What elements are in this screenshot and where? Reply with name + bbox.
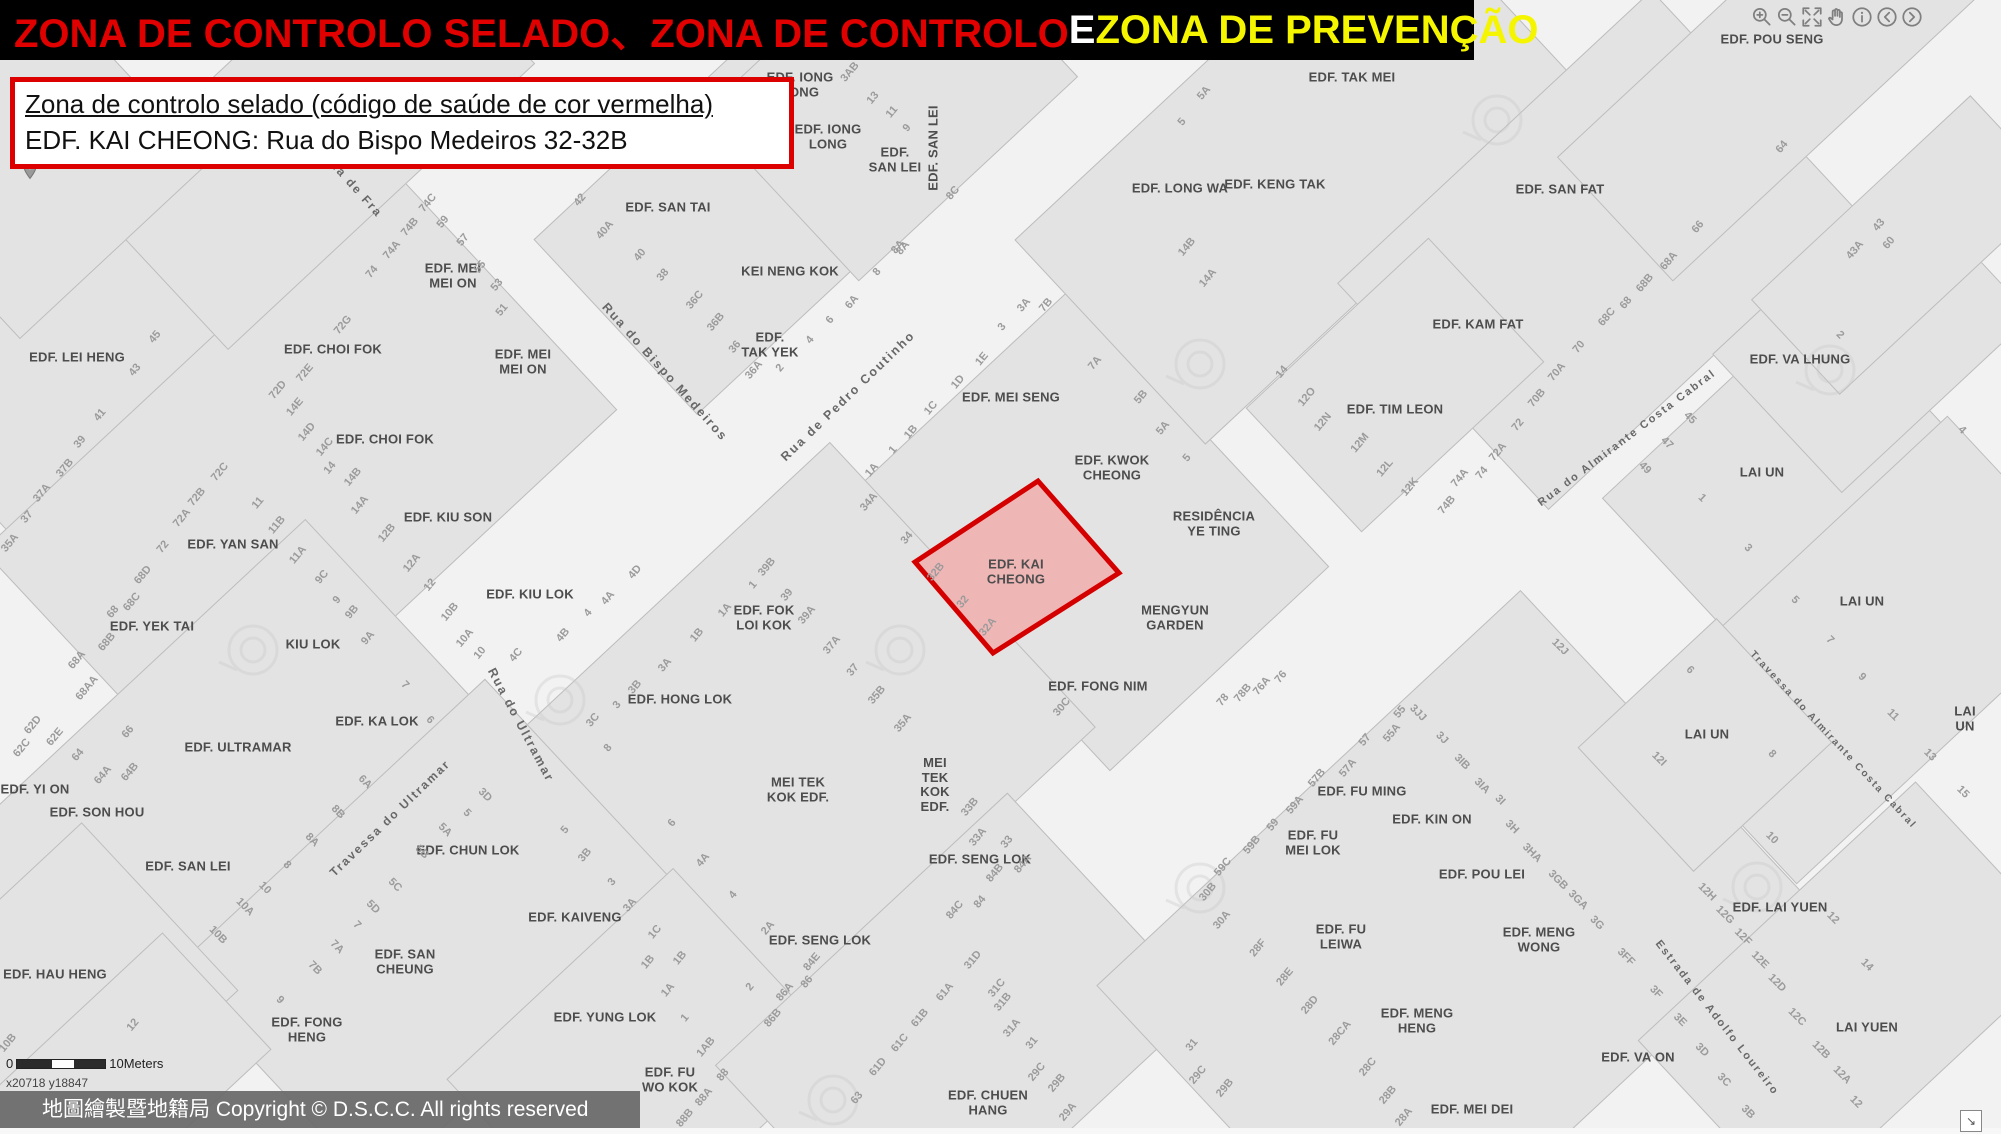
lot-number: 15 xyxy=(1954,783,1971,800)
lot-number: 72A xyxy=(1487,440,1509,463)
building-label: LAI UN xyxy=(1840,595,1885,610)
lot-number: 10B xyxy=(207,924,230,947)
lot-number: 57 xyxy=(454,231,471,248)
lot-number: 37A xyxy=(31,481,53,504)
lot-number: 3B xyxy=(1739,1103,1757,1121)
lot-number: 32A xyxy=(977,615,999,638)
lot-number: 5A xyxy=(436,821,454,839)
building-label: KIU LOK xyxy=(286,638,341,653)
lot-number: 3GB xyxy=(1546,868,1570,892)
building-label: EDF. POU SENG xyxy=(1720,33,1823,48)
lot-number: 3A xyxy=(656,656,674,674)
lot-number: 76 xyxy=(1272,668,1289,685)
lot-number: 12B xyxy=(1810,1039,1833,1062)
building-label: EDF. CHOI FOK xyxy=(284,343,382,358)
building-label: EDF. VA ON xyxy=(1601,1051,1675,1066)
lot-number: 9C xyxy=(313,568,331,586)
lot-number: 29C xyxy=(1187,1063,1209,1086)
previous-extent-button[interactable] xyxy=(1875,5,1899,29)
building-label: EDF. SAN LEI xyxy=(145,860,230,875)
lot-number: 59 xyxy=(434,213,451,230)
lot-number: 3E xyxy=(1671,1011,1689,1029)
lot-number: 12J xyxy=(1549,636,1570,657)
building-label: EDF. SAN TAI xyxy=(625,201,710,216)
lot-number: 9 xyxy=(900,122,913,134)
lot-number: 12H xyxy=(1696,881,1719,904)
lot-number: 7 xyxy=(399,679,412,692)
building-label: EDF. KWOK CHEONG xyxy=(1075,453,1150,482)
lot-number: 28C xyxy=(1357,1055,1379,1078)
lot-number: 84E xyxy=(801,951,823,974)
lot-number: 1 xyxy=(746,579,759,591)
lot-number: 72B xyxy=(186,485,208,508)
lot-number: 11 xyxy=(250,495,267,512)
building-label: EDF. HONG LOK xyxy=(628,693,732,708)
lot-number: 3 xyxy=(1742,542,1755,555)
building-label: EDF. MEI SENG xyxy=(962,391,1060,406)
lot-number: 76A xyxy=(1251,674,1273,697)
lot-number: 5 xyxy=(461,807,474,820)
lot-number: 64B xyxy=(119,760,141,783)
lot-number: 68A xyxy=(66,648,88,671)
lot-number: 33A xyxy=(967,825,989,848)
lot-number: 4 xyxy=(803,334,816,346)
lot-number: 7A xyxy=(1086,354,1104,372)
lot-number: 10 xyxy=(471,644,488,661)
lot-number: 9 xyxy=(330,594,343,606)
lot-number: 1B xyxy=(902,423,920,441)
lot-number: 43 xyxy=(1870,216,1887,233)
lot-number: 55A xyxy=(1381,721,1403,744)
lot-number: 70 xyxy=(1570,338,1587,355)
lot-number: 8B xyxy=(329,803,347,821)
lot-number: 59 xyxy=(1264,816,1281,833)
lot-number: 5 xyxy=(1180,452,1193,464)
lot-number: 74A xyxy=(381,238,403,261)
lot-number: 68C xyxy=(1596,305,1618,328)
lot-number: 60 xyxy=(1880,234,1897,251)
lot-number: 72A xyxy=(171,506,193,529)
legend-line-sealed-zone: Zona de controlo selado (código de saúde… xyxy=(25,86,779,122)
lot-number: 5 xyxy=(1789,594,1802,607)
lot-number: 7 xyxy=(1824,634,1837,647)
lot-number: 4 xyxy=(1956,424,1969,437)
lot-number: 1 xyxy=(886,444,899,456)
lot-number: 61B xyxy=(909,1006,931,1029)
lot-number: 11B xyxy=(266,514,288,537)
lot-number: 3IB xyxy=(1452,752,1473,773)
lot-number: 86 xyxy=(798,973,815,990)
lot-number: 1 xyxy=(678,1012,691,1024)
lot-number: 33B xyxy=(959,795,981,818)
lot-number: 35A xyxy=(892,711,914,734)
lot-number: 74 xyxy=(1473,464,1490,481)
banner-title-segment: ZONA DE CONTROLO SELADO、ZONA DE CONTROLO xyxy=(14,1,1069,59)
lot-number: 29A xyxy=(1057,1100,1079,1123)
map-toolbar xyxy=(1750,5,1924,29)
lot-number: 9 xyxy=(274,994,287,1007)
banner-title-segment: ZONA DE PREVENÇÃO xyxy=(1095,8,1538,53)
building-label: EDF. KIU LOK xyxy=(486,588,574,603)
building-label: EDF. TAK YEK xyxy=(741,330,798,359)
building-label: EDF. KAM FAT xyxy=(1433,318,1524,333)
lot-number: 1B xyxy=(639,953,657,971)
lot-number: 47 xyxy=(1658,434,1675,451)
lot-number: 8 xyxy=(601,742,614,754)
lot-number: 74 xyxy=(363,263,380,280)
lot-number: 31D xyxy=(962,948,984,971)
identify-button[interactable] xyxy=(1850,5,1874,29)
lot-number: 8 xyxy=(870,266,883,278)
lot-number: 29C xyxy=(1026,1060,1048,1083)
building-label: EDF. KAIVENG xyxy=(528,911,621,926)
lot-number: 72E xyxy=(294,362,316,385)
lot-number: 40 xyxy=(631,246,648,263)
lot-number: 14 xyxy=(1858,956,1875,973)
lot-number: 68C xyxy=(121,590,143,613)
lot-number: 11A xyxy=(287,544,309,567)
lot-number: 1 xyxy=(1696,492,1709,505)
lot-number: 10 xyxy=(1763,829,1780,846)
lot-number: 31 xyxy=(1023,1034,1040,1051)
lot-number: 3HA xyxy=(1520,841,1544,865)
lot-number: 88 xyxy=(714,1066,731,1083)
lot-number: 88B xyxy=(674,1106,696,1129)
lot-number: 3JJ xyxy=(1407,702,1428,723)
lot-number: 2 xyxy=(743,981,756,993)
lot-number: 14 xyxy=(1273,363,1290,380)
lot-number: 3 xyxy=(610,699,623,711)
lot-number: 7B xyxy=(306,959,324,977)
building-label: MEI TEK KOK EDF. xyxy=(920,756,950,814)
street-name: Travessa do Ultramar xyxy=(327,757,453,880)
lot-number: 31A xyxy=(1001,1016,1023,1039)
building-label: MEI TEK KOK EDF. xyxy=(767,775,829,804)
lot-number: 40A xyxy=(594,218,616,241)
lot-number: 62D xyxy=(22,713,44,736)
lot-number: 28F xyxy=(1247,937,1268,959)
lot-number: 14B xyxy=(342,465,364,488)
building-label: EDF. FOK LOI KOK xyxy=(734,603,795,632)
lot-number: 2 xyxy=(773,362,786,374)
lot-number: 6 xyxy=(823,314,836,326)
lot-number: 3A xyxy=(1015,296,1033,314)
lot-number: 34A xyxy=(858,490,880,513)
lot-number: 32 xyxy=(954,593,971,610)
lot-number: 1B xyxy=(688,626,706,644)
lot-number: 68 xyxy=(1617,294,1634,311)
street-name: Rua de Pedro Coutinho xyxy=(778,328,918,464)
lot-number: 28A xyxy=(1393,1105,1415,1128)
lot-number: 4D xyxy=(626,563,644,581)
lot-number: 10B xyxy=(0,1031,19,1054)
lot-number: 8 xyxy=(1766,748,1779,761)
lot-number: 72G xyxy=(332,313,355,337)
lot-number: 10 xyxy=(256,879,273,896)
lot-number: 53 xyxy=(488,276,505,293)
scale-zero-label: 0 xyxy=(6,1056,13,1071)
lot-number: 4C xyxy=(507,646,525,664)
lot-number: 6 xyxy=(424,714,437,727)
lot-number: 1D xyxy=(949,373,967,391)
building-label: EDF. SON HOU xyxy=(50,806,145,821)
lot-number: 64A xyxy=(92,763,114,786)
lot-number: 3C xyxy=(1715,1071,1733,1089)
building-label: EDF. YEK TAI xyxy=(110,620,194,635)
building-label: EDF. YAN SAN xyxy=(187,538,278,553)
lot-number: 9A xyxy=(359,629,377,647)
lot-number: 12K xyxy=(1399,475,1421,498)
building-label: EDF. FU MING xyxy=(1317,785,1406,800)
lot-number: 78 xyxy=(1214,691,1231,708)
lot-number: 3J xyxy=(1433,729,1450,746)
building-label: EDF. MENG HENG xyxy=(1381,1006,1454,1035)
lot-number: 12I xyxy=(1649,749,1668,768)
lot-number: 61D xyxy=(867,1055,889,1078)
zoom-in-button[interactable] xyxy=(1750,5,1774,29)
lot-number: 36C xyxy=(684,288,706,311)
lot-number: 3 xyxy=(995,321,1008,333)
lot-number: 74A xyxy=(1449,466,1471,489)
lot-number: 4A xyxy=(599,589,617,607)
lot-number: 3IA xyxy=(1472,776,1493,797)
map-labels-layer: EDF. POU SENGEDF. TAK MEIEDF. IONG LONGE… xyxy=(0,0,2001,1134)
lot-number: 13 xyxy=(864,89,881,106)
lot-number: 35A xyxy=(0,531,21,554)
next-extent-icon xyxy=(1900,5,1924,29)
building-label: EDF. SAN FAT xyxy=(1516,183,1605,198)
building-label: EDF. MEI DEI xyxy=(1431,1103,1514,1118)
lot-number: 6 xyxy=(1684,664,1697,677)
lot-number: 57 xyxy=(1356,731,1373,748)
lot-number: 62E xyxy=(44,726,66,749)
title-banner: ZONA DE CONTROLO SELADO、ZONA DE CONTROLO… xyxy=(0,0,1474,60)
lot-number: 3A xyxy=(621,896,639,914)
lot-number: 14B xyxy=(1176,235,1198,258)
full-extent-button[interactable] xyxy=(1800,5,1824,29)
lot-number: 1B xyxy=(671,949,689,967)
lot-number: 64 xyxy=(1773,138,1790,155)
zoom-out-button[interactable] xyxy=(1775,5,1799,29)
next-extent-button[interactable] xyxy=(1900,5,1924,29)
lot-number: 11 xyxy=(884,104,901,121)
lot-number: 29B xyxy=(1214,1076,1236,1099)
lot-number: 1A xyxy=(659,981,677,999)
lot-number: 6A xyxy=(356,773,374,791)
lot-number: 86B xyxy=(762,1006,784,1029)
lot-number: 68B xyxy=(1634,271,1656,294)
building-label: EDF. CHUEN HANG xyxy=(948,1088,1028,1117)
lot-number: 31 xyxy=(1183,1036,1200,1053)
lot-number: 35B xyxy=(866,683,888,706)
building-label: KEI NENG KOK xyxy=(741,265,839,280)
lot-number: 32B xyxy=(925,560,947,583)
lot-number: 7A xyxy=(328,938,346,956)
lot-number: 59A xyxy=(1284,793,1306,816)
lot-number: 30C xyxy=(1051,695,1073,718)
building-label: EDF. FU MEI LOK xyxy=(1285,828,1341,857)
lot-number: 12C xyxy=(1786,1006,1809,1029)
lot-number: 72 xyxy=(154,538,171,555)
lot-number: 72D xyxy=(267,378,289,401)
building-label: EDF. KIU SON xyxy=(404,511,492,526)
lot-number: 5C xyxy=(386,876,404,894)
street-name: Rua do Ultramar xyxy=(485,666,557,785)
lot-number: 9 xyxy=(1856,671,1869,684)
lot-number: 39A xyxy=(796,603,818,626)
lot-number: 5A xyxy=(1154,419,1172,437)
lot-number: 5B xyxy=(1132,388,1150,406)
lot-number: 74B xyxy=(1436,493,1458,516)
lot-number: 12 xyxy=(1847,1093,1864,1110)
lot-number: 43 xyxy=(126,361,143,378)
building-label: EDF. SAN CHEUNG xyxy=(375,947,436,976)
lot-number: 37 xyxy=(844,661,861,678)
lot-number: 28D xyxy=(1299,993,1321,1016)
lot-number: 1AB xyxy=(694,1035,717,1060)
building-label: EDF. LONG WA xyxy=(1132,182,1228,197)
lot-number: 84C xyxy=(944,898,966,921)
lot-number: 1C xyxy=(646,923,664,941)
building-label: EDF. YUNG LOK xyxy=(554,1011,657,1026)
lot-number: 8C xyxy=(944,184,962,202)
lot-number: 78B xyxy=(1232,681,1254,704)
lot-number: 11 xyxy=(1885,707,1902,724)
building-label: LAI UN xyxy=(1685,728,1730,743)
lot-number: 3G xyxy=(1588,914,1607,933)
map-canvas[interactable]: EDF. POU SENGEDF. TAK MEIEDF. IONG LONGE… xyxy=(0,0,2001,1134)
building-label: EDF. TIM LEON xyxy=(1347,403,1444,418)
lot-number: 14C xyxy=(314,435,336,458)
lot-number: 14E xyxy=(284,396,306,419)
lot-number: 49 xyxy=(1636,459,1653,476)
lot-number: 12O xyxy=(1296,385,1319,409)
lot-number: 8 xyxy=(281,859,294,872)
building-label: MENGYUN GARDEN xyxy=(1141,603,1209,632)
lot-number: 3FF xyxy=(1615,946,1637,968)
bottom-strip xyxy=(0,1128,2001,1134)
lot-number: 33 xyxy=(998,833,1015,850)
lot-number: 12E xyxy=(1749,949,1771,971)
building-label: EDF. KENG TAK xyxy=(1224,178,1325,193)
lot-number: 34 xyxy=(898,529,915,546)
lot-number: 43A xyxy=(1844,238,1866,261)
lot-number: 30A xyxy=(1211,908,1233,931)
lot-number: 1E xyxy=(973,350,991,368)
lot-number: 57A xyxy=(1337,756,1359,779)
lot-number: 45 xyxy=(1681,409,1698,426)
building-label: EDF. VA LHUNG xyxy=(1750,353,1851,368)
lot-number: 12D xyxy=(1766,972,1789,995)
lot-number: 3H xyxy=(1503,818,1521,836)
lot-number: 3D xyxy=(1693,1041,1711,1059)
lot-number: 4B xyxy=(554,626,572,644)
lot-number: 5 xyxy=(558,824,571,836)
lot-number: 41 xyxy=(91,406,108,423)
building-label: EDF. IONG LONG xyxy=(795,122,862,151)
lot-number: 3D xyxy=(476,786,494,804)
lot-number: 12N xyxy=(1312,410,1334,433)
building-label: EDF. SENG LOK xyxy=(769,934,871,949)
lot-number: 72 xyxy=(1509,416,1526,433)
lot-number: 4A xyxy=(694,851,712,869)
zoom-out-icon xyxy=(1775,5,1799,29)
lot-number: 70B xyxy=(1526,386,1548,409)
lot-number: 66 xyxy=(119,723,136,740)
lot-number: 74B xyxy=(399,215,421,238)
zoom-in-icon xyxy=(1750,5,1774,29)
building-label: RESIDÊNCIA YE TING xyxy=(1173,509,1255,538)
lot-number: 70A xyxy=(1546,360,1568,383)
lot-number: 12L xyxy=(1374,457,1395,479)
lot-number: 3C xyxy=(584,711,602,729)
building-label: LAI UN xyxy=(1740,466,1785,481)
lot-number: 14A xyxy=(1197,266,1219,289)
legend-info-box: Zona de controlo selado (código de saúde… xyxy=(10,77,794,169)
lot-number: 74C xyxy=(417,191,439,214)
lot-number: 12 xyxy=(124,1016,141,1033)
building-label: EDF. LAI YUEN xyxy=(1733,901,1828,916)
identify-icon xyxy=(1850,5,1874,29)
building-label: EDF. TAK MEI xyxy=(1309,71,1396,86)
lot-number: 1A xyxy=(863,461,881,479)
banner-title-segment: E xyxy=(1069,8,1096,53)
lot-number: 14D xyxy=(296,420,318,443)
lot-number: 12A xyxy=(1831,1064,1854,1087)
lot-number: 61C xyxy=(889,1031,911,1054)
scale-distance-label: 10Meters xyxy=(109,1056,163,1071)
lot-number: 61A xyxy=(934,980,956,1003)
lot-number: 3 xyxy=(605,876,618,888)
street-name: Travessa do Almirante Costa Cabral xyxy=(1748,649,1919,831)
pan-icon xyxy=(1825,5,1849,29)
lot-number: 64 xyxy=(69,746,86,763)
resize-corner-icon[interactable]: ↘ xyxy=(1960,1110,1982,1132)
lot-number: 5 xyxy=(1175,116,1188,128)
lot-number: 14A xyxy=(349,493,371,516)
lot-number: 28CA xyxy=(1326,1018,1353,1047)
lot-number: 72C xyxy=(209,460,231,483)
lot-number: 38 xyxy=(654,266,671,283)
lot-number: 7B xyxy=(1037,296,1055,314)
scale-bar-graphic xyxy=(16,1059,106,1069)
building-label: EDF. MENG WONG xyxy=(1503,925,1576,954)
lot-number: 29B xyxy=(1046,1071,1068,1094)
lot-number: 4 xyxy=(726,889,739,901)
lot-number: 68A xyxy=(1658,249,1680,272)
building-label: EDF. LEI HENG xyxy=(29,351,125,366)
lot-number: 3I xyxy=(1493,793,1508,808)
building-label: EDF. KIN ON xyxy=(1392,813,1471,828)
lot-number: 45 xyxy=(146,328,163,345)
lot-number: 63 xyxy=(848,1089,865,1106)
lot-number: 10B xyxy=(439,600,461,623)
lot-number: 28E xyxy=(1274,966,1296,989)
full-extent-icon xyxy=(1800,5,1824,29)
lot-number: 37 xyxy=(18,508,35,525)
lot-number: 13 xyxy=(1921,746,1938,763)
lot-number: 12B xyxy=(376,521,398,544)
building-label: EDF. ULTRAMAR xyxy=(184,741,291,756)
lot-number: 37A xyxy=(821,633,843,656)
copyright-bar: 地圖繪製暨地籍局 Copyright © D.S.C.C. All rights… xyxy=(0,1091,640,1128)
lot-number: 9B xyxy=(343,603,361,621)
pan-button[interactable] xyxy=(1825,5,1849,29)
lot-number: 3F xyxy=(1647,983,1665,1001)
building-label: LAI YUEN xyxy=(1836,1021,1898,1036)
building-label: EDF. SAN LEI xyxy=(927,105,942,190)
lot-number: 36B xyxy=(705,310,727,333)
